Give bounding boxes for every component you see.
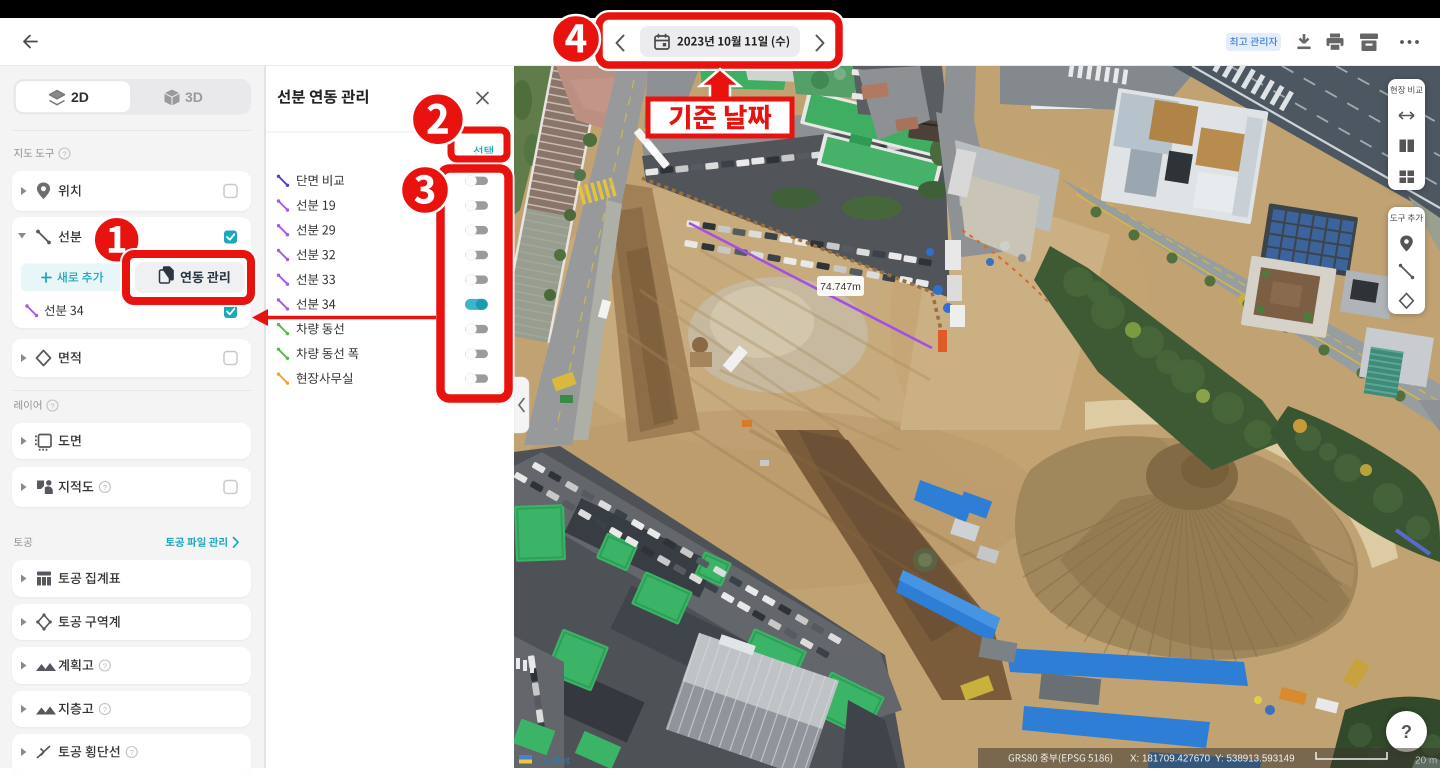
svg-text:?: ? [103, 662, 107, 671]
svg-text:?: ? [1401, 722, 1412, 742]
svg-text:X: 181709.427670: X: 181709.427670 [1130, 754, 1211, 765]
svg-text:Y: 538913.593149: Y: 538913.593149 [1215, 754, 1295, 765]
svg-text:Leaflet: Leaflet [536, 755, 570, 767]
svg-text:?: ? [62, 150, 66, 159]
svg-text:?: ? [50, 402, 54, 411]
svg-text:2D: 2D [71, 89, 89, 105]
svg-text:20 m: 20 m [1415, 756, 1437, 767]
svg-text:?: ? [130, 748, 134, 757]
svg-text:3D: 3D [185, 89, 203, 105]
svg-text:?: ? [103, 705, 107, 714]
svg-text:?: ? [103, 483, 107, 492]
